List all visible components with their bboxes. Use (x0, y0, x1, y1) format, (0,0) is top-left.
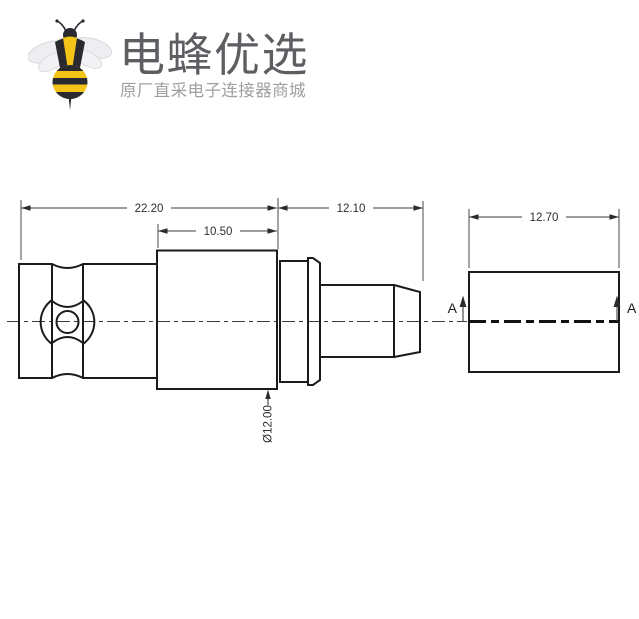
side-view-block: A A (448, 272, 637, 372)
dim-overall-label: 22.20 (135, 203, 164, 215)
dim-overall: 22.20 (21, 203, 277, 215)
main-view-connector (19, 251, 420, 390)
technical-drawing: A A 22.20 10.50 (0, 0, 639, 619)
dim-body-label: 10.50 (204, 226, 233, 238)
dim-body: 10.50 (158, 226, 277, 238)
section-arrow-left (460, 296, 467, 322)
dim-rear-label: 12.10 (337, 203, 366, 215)
page: 电蜂优选 原厂直采电子连接器商城 (0, 0, 639, 619)
section-label-right: A (627, 300, 637, 316)
dim-diameter: Ø12.00 (263, 390, 275, 443)
dim-side-block: 12.70 (469, 212, 619, 224)
dim-side-block-label: 12.70 (530, 212, 559, 224)
dim-diameter-label: Ø12.00 (263, 405, 275, 443)
section-label-left: A (448, 300, 458, 316)
connector-body-outline (157, 251, 277, 390)
dim-rear: 12.10 (278, 203, 423, 215)
